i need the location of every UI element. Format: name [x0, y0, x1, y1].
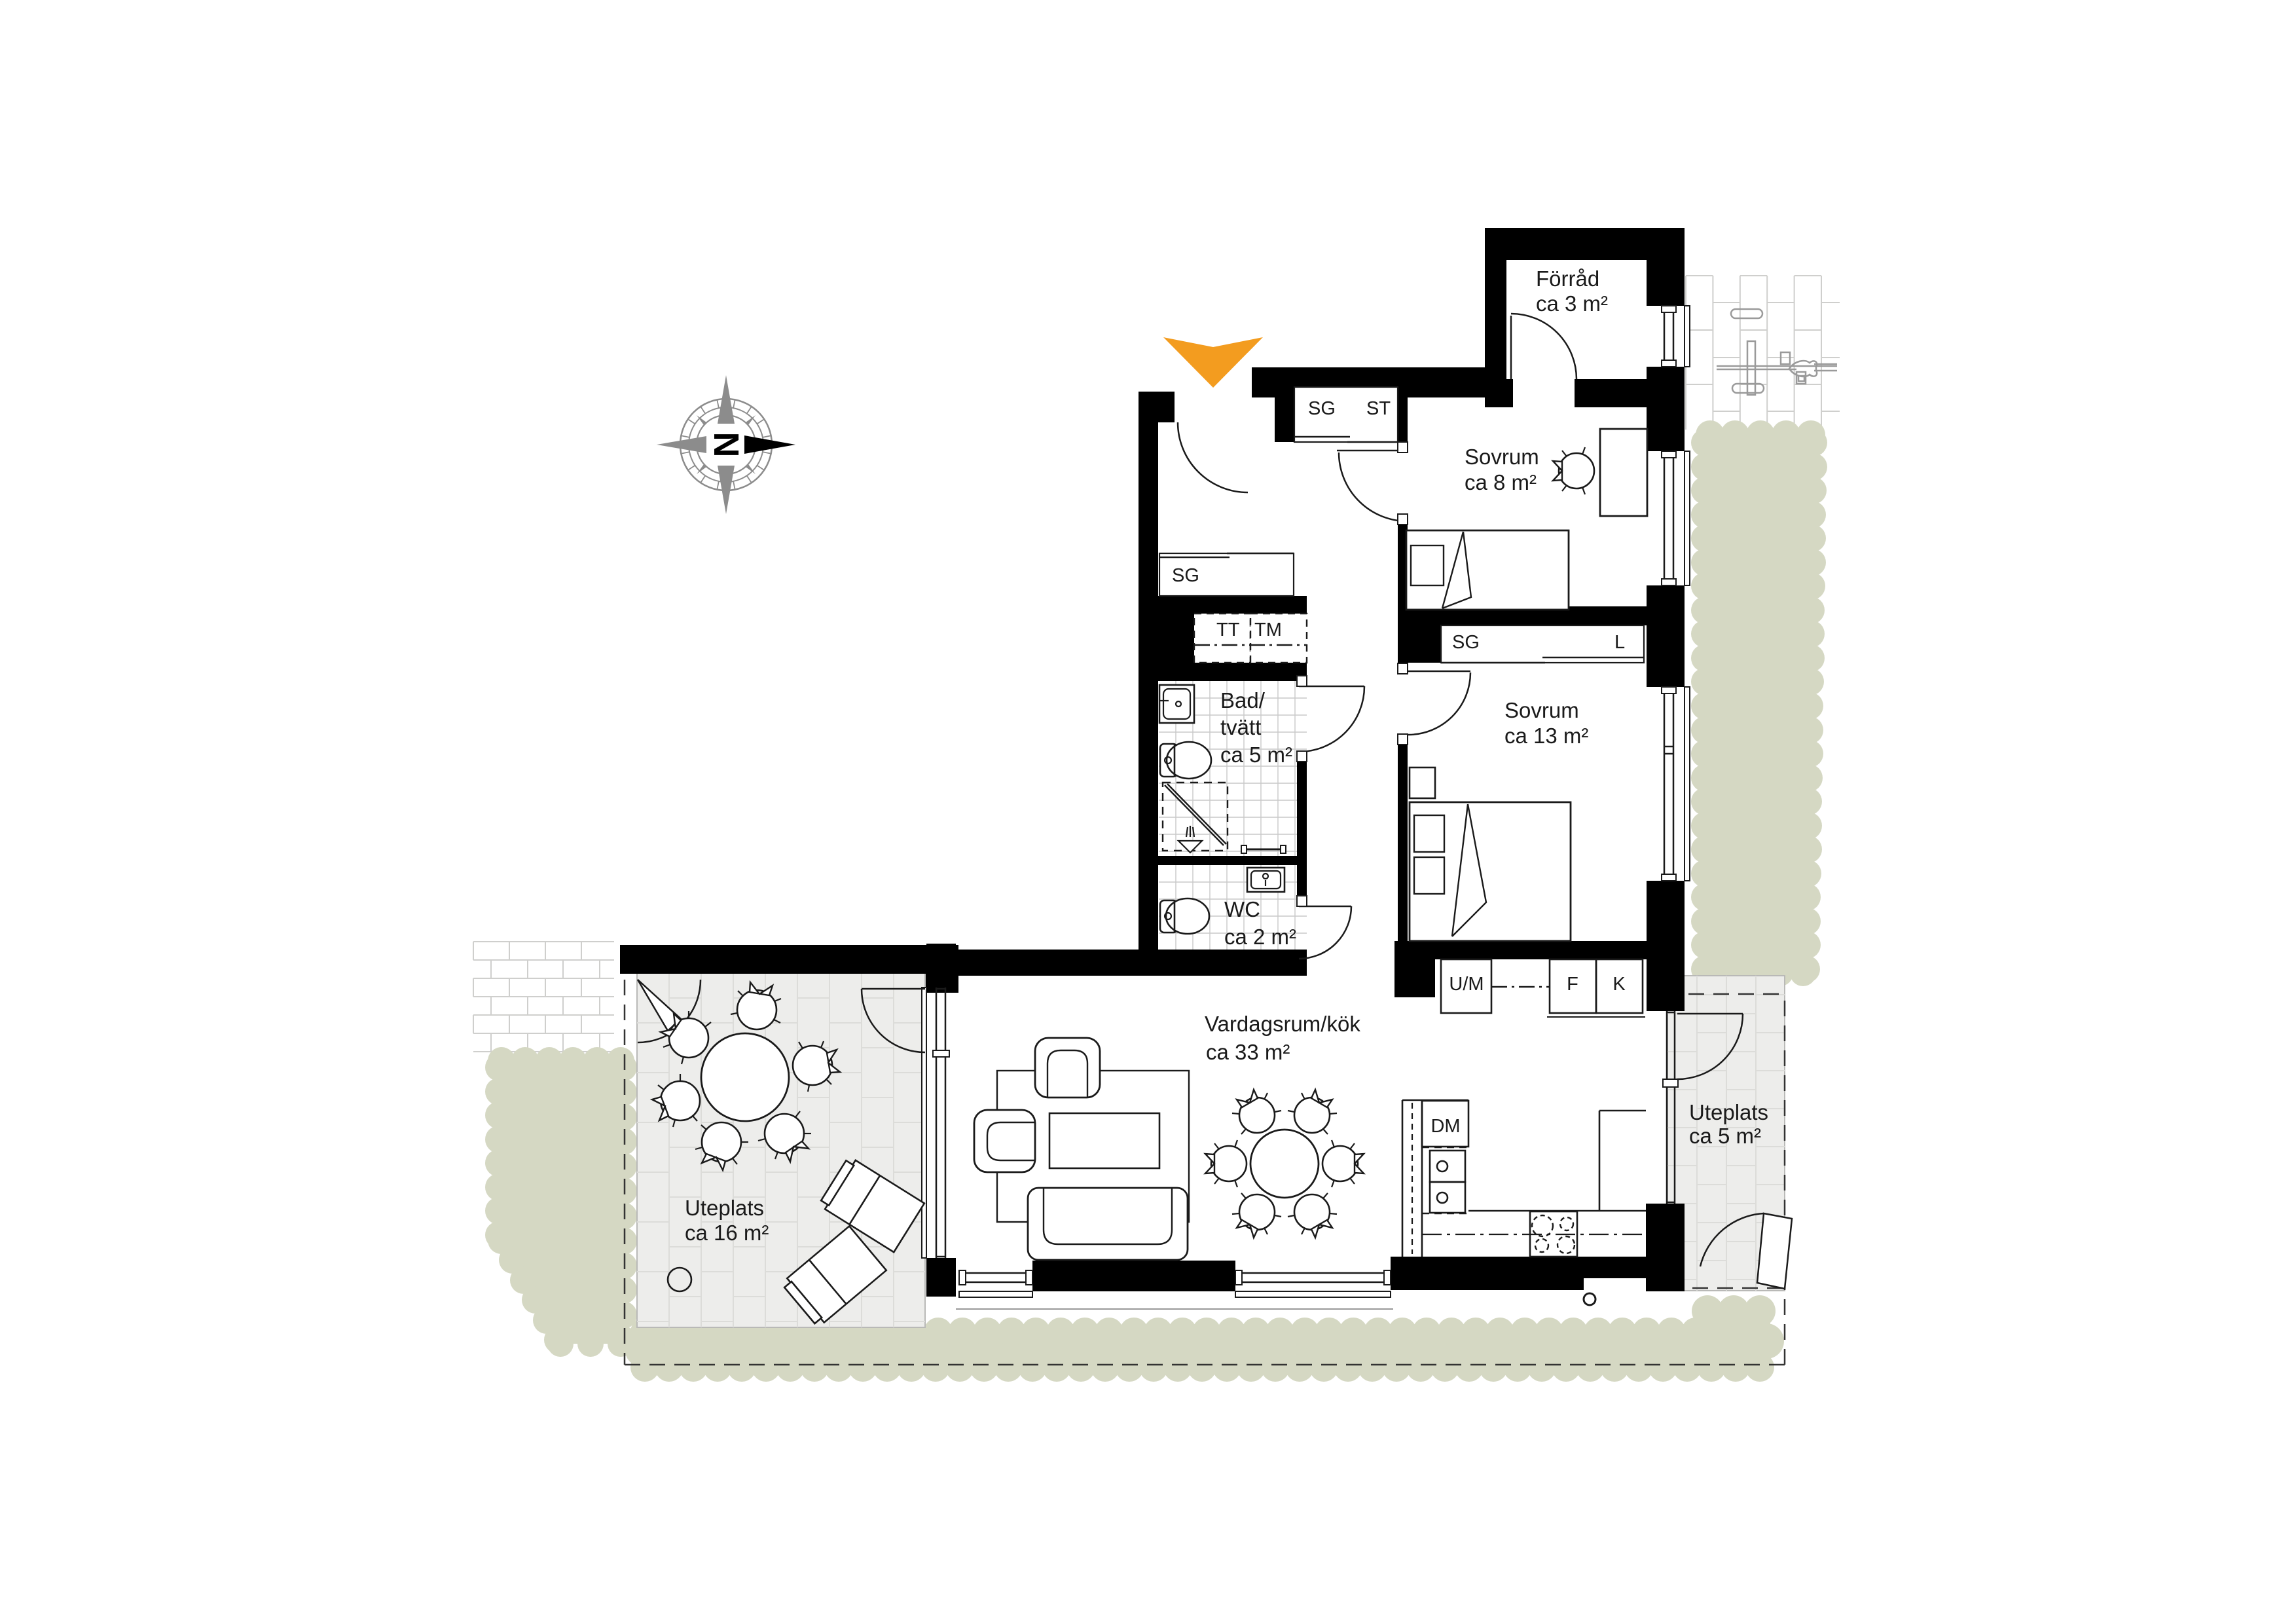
- svg-text:WC: WC: [1224, 897, 1260, 921]
- svg-text:ca 5 m²: ca 5 m²: [1220, 743, 1292, 767]
- svg-text:SG: SG: [1308, 398, 1336, 419]
- svg-text:Bad/: Bad/: [1220, 688, 1266, 712]
- svg-text:Sovrum: Sovrum: [1465, 445, 1539, 469]
- svg-text:ca 13 m²: ca 13 m²: [1504, 724, 1588, 748]
- svg-text:ca 5 m²: ca 5 m²: [1689, 1124, 1761, 1148]
- svg-text:ca 33 m²: ca 33 m²: [1206, 1040, 1290, 1064]
- svg-text:SG: SG: [1452, 632, 1480, 653]
- svg-text:Vardagsrum/kök: Vardagsrum/kök: [1205, 1012, 1360, 1036]
- svg-text:TM: TM: [1254, 619, 1282, 640]
- svg-text:F: F: [1567, 974, 1578, 995]
- svg-text:DM: DM: [1430, 1116, 1460, 1137]
- svg-text:Uteplats: Uteplats: [1689, 1100, 1768, 1124]
- svg-text:TT: TT: [1216, 619, 1240, 640]
- svg-text:K: K: [1613, 974, 1626, 995]
- svg-text:ca 3 m²: ca 3 m²: [1536, 291, 1608, 316]
- svg-text:L: L: [1614, 632, 1625, 653]
- svg-text:ca 16 m²: ca 16 m²: [685, 1221, 769, 1245]
- svg-text:ca 2 m²: ca 2 m²: [1224, 925, 1296, 949]
- svg-text:Uteplats: Uteplats: [685, 1196, 764, 1220]
- svg-text:SG: SG: [1172, 565, 1199, 586]
- svg-text:Sovrum: Sovrum: [1504, 698, 1579, 722]
- svg-text:Förråd: Förråd: [1536, 267, 1599, 291]
- svg-text:tvätt: tvätt: [1220, 715, 1261, 739]
- svg-text:ca 8 m²: ca 8 m²: [1465, 470, 1537, 494]
- svg-text:N: N: [706, 432, 746, 458]
- svg-text:ST: ST: [1366, 398, 1391, 419]
- svg-text:U/M: U/M: [1449, 974, 1484, 995]
